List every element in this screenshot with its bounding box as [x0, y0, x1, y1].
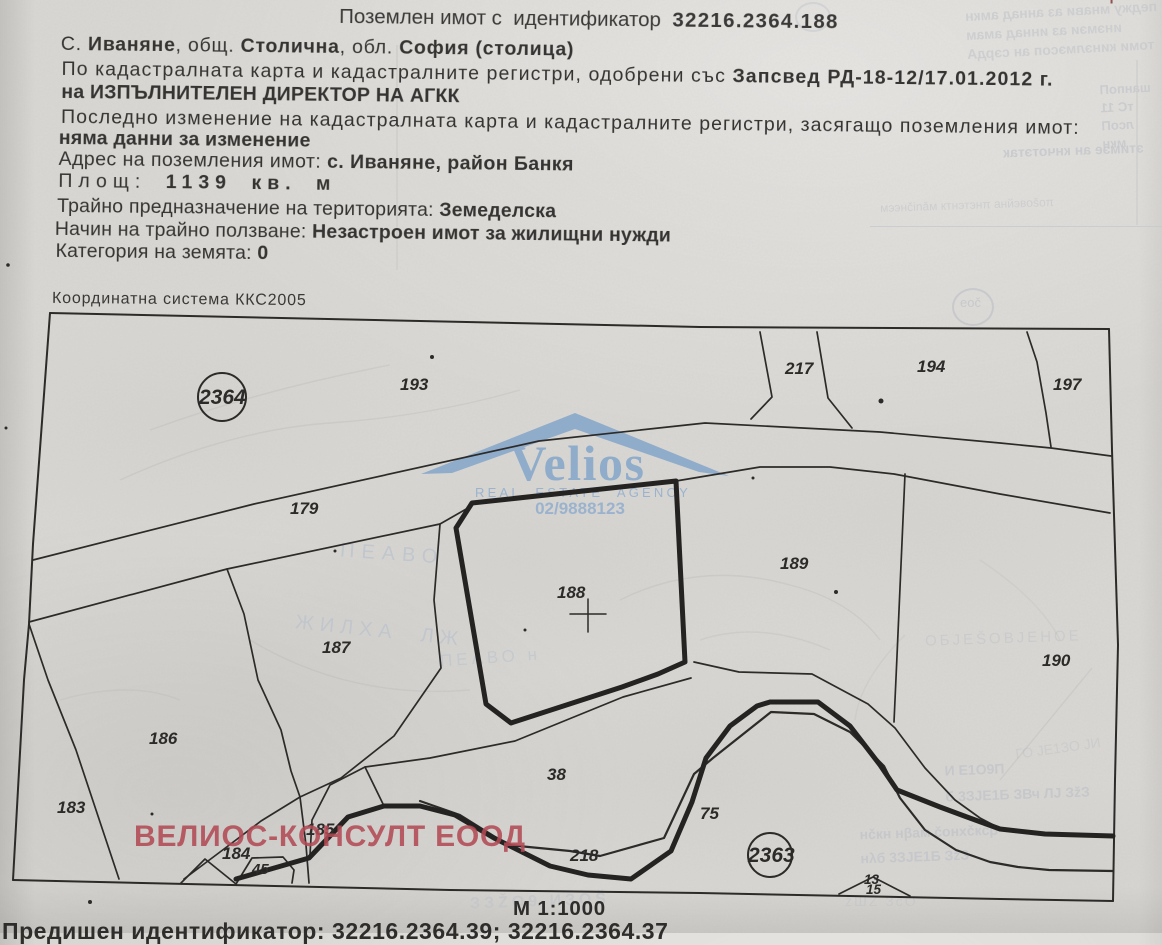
svg-text:189: 189 — [780, 554, 809, 573]
svg-text:183: 183 — [57, 798, 86, 817]
svg-text:190: 190 — [1042, 651, 1071, 670]
svg-text:186: 186 — [149, 729, 178, 748]
svg-text:188: 188 — [557, 583, 586, 602]
svg-text:45: 45 — [251, 861, 269, 878]
svg-text:218: 218 — [569, 846, 599, 865]
svg-text:187: 187 — [322, 638, 352, 657]
svg-text:ВЕЛИОС-КОНСУЛТ ЕООД: ВЕЛИОС-КОНСУЛТ ЕООД — [134, 820, 526, 853]
svg-text:38: 38 — [547, 765, 566, 784]
svg-text:02/9888123: 02/9888123 — [535, 499, 625, 518]
svg-text:197: 197 — [1053, 375, 1083, 394]
svg-text:15: 15 — [866, 882, 882, 897]
svg-text:217: 217 — [784, 359, 815, 378]
svg-text:194: 194 — [917, 357, 946, 376]
svg-text:193: 193 — [400, 375, 429, 394]
svg-text:179: 179 — [290, 499, 319, 518]
svg-text:75: 75 — [700, 804, 719, 823]
svg-text:2364: 2364 — [198, 386, 246, 409]
svg-text:2363: 2363 — [747, 844, 795, 867]
